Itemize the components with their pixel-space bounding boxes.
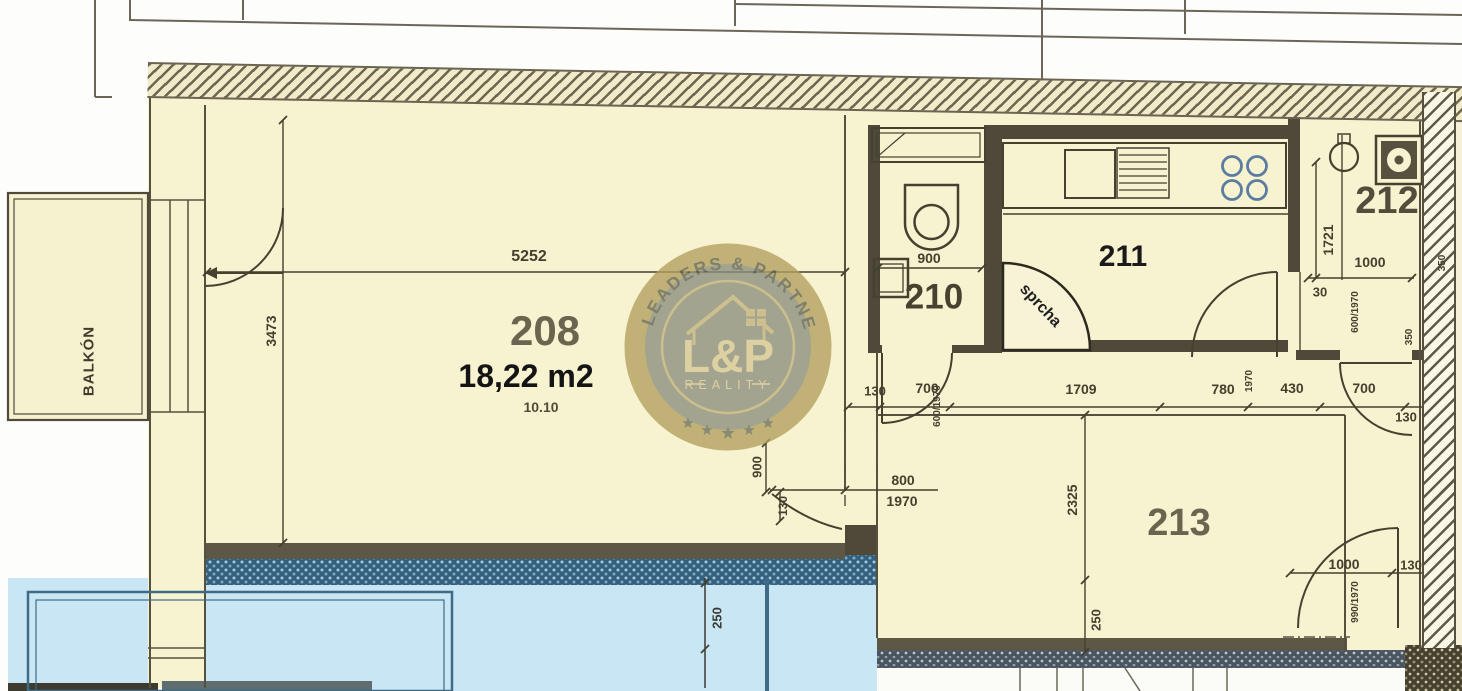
floorplan-canvas: LEADERS & PARTNERS L&P REALITY BAL — [0, 0, 1462, 691]
dim-door-800-h: 1970 — [886, 494, 917, 508]
dim-780: 780 — [1211, 382, 1234, 396]
dim-130-b: 130 — [1395, 411, 1417, 424]
dim-250-right: 250 — [1090, 609, 1103, 631]
dim-700-b: 700 — [1352, 381, 1375, 395]
dim-2325: 2325 — [1065, 484, 1079, 515]
room-213-number: 213 — [1147, 504, 1210, 542]
dim-door-600-1970-b: 600/1970 — [1351, 291, 1361, 333]
dim-door-800: 800 — [891, 473, 914, 487]
dim-1709: 1709 — [1065, 382, 1096, 396]
dim-350-a: 350 — [1438, 255, 1448, 272]
room-211-number: 211 — [1099, 242, 1147, 272]
room-208-number: 208 — [510, 310, 580, 352]
dim-30: 30 — [1313, 286, 1327, 299]
dim-900-wc: 900 — [917, 251, 940, 265]
room-210-number: 210 — [905, 280, 963, 315]
dim-1000-door: 1000 — [1328, 557, 1359, 571]
dim-900-v: 900 — [751, 456, 764, 478]
dim-3473: 3473 — [264, 315, 278, 346]
balkon-label: BALKÓN — [82, 326, 97, 396]
room-208-area: 18,22 m2 — [458, 360, 593, 392]
dim-250-left: 250 — [711, 607, 724, 629]
dim-430: 430 — [1280, 381, 1303, 395]
dim-door-1970: 1970 — [1245, 370, 1255, 392]
dim-1721: 1721 — [1321, 224, 1335, 255]
dim-door-600-1970-a: 600/1970 — [933, 385, 943, 427]
dim-130-c: 130 — [1400, 559, 1422, 572]
dim-130-a: 130 — [864, 385, 886, 398]
plan-labels: BALKÓN20818,22 m210.10210211212213sprcha… — [0, 0, 1462, 691]
dim-130-v: 130 — [777, 496, 789, 516]
dim-door-990-1970: 990/1970 — [1351, 581, 1361, 623]
dim-350-b: 350 — [1405, 329, 1415, 346]
room-208-note: 10.10 — [523, 400, 558, 414]
sprcha-label: sprcha — [1016, 281, 1063, 330]
dim-1000-212: 1000 — [1354, 255, 1385, 269]
dim-5252: 5252 — [511, 249, 547, 265]
room-212-number: 212 — [1355, 182, 1418, 220]
